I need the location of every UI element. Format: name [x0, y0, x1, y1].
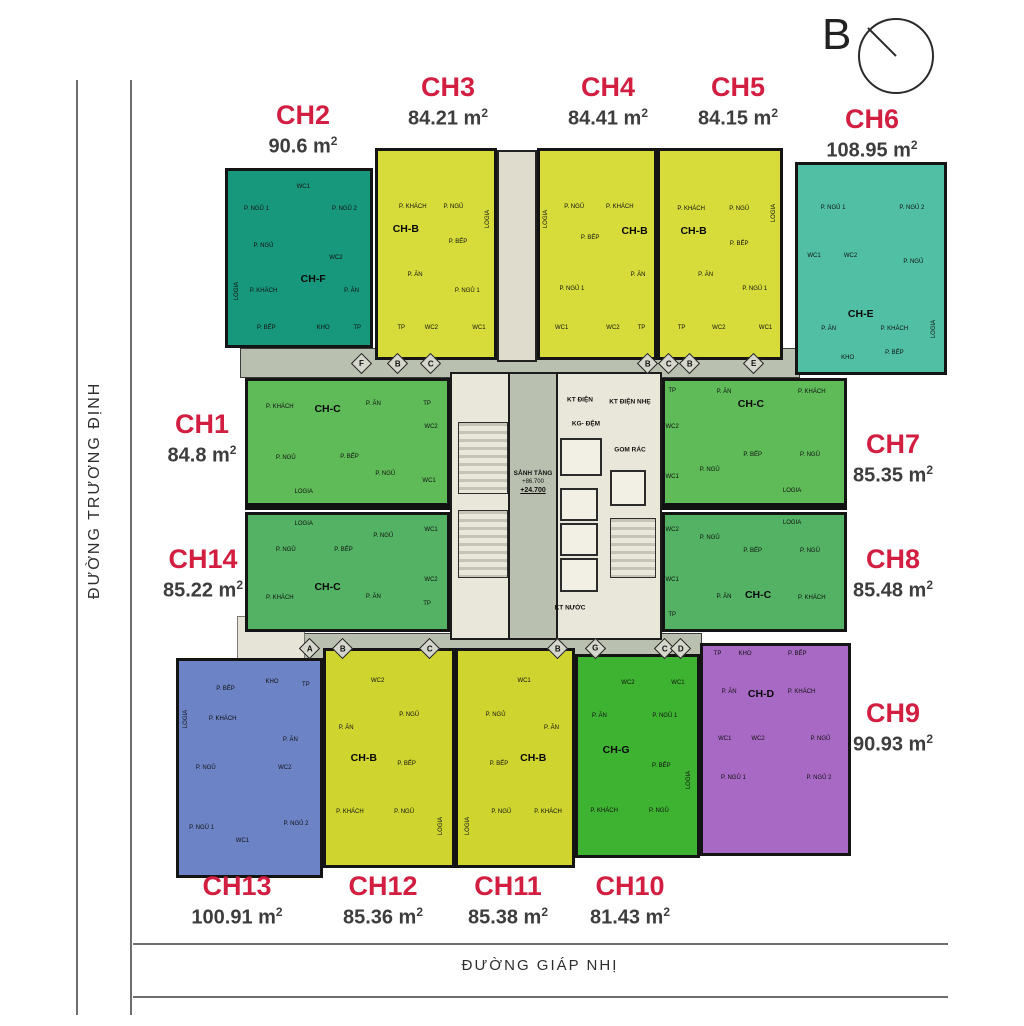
room-label: WC2 — [751, 736, 764, 742]
unit-area: 84.15 m2 — [663, 101, 813, 131]
room-label: P. NGỦ — [486, 712, 506, 718]
room-label: P. NGỦ 2 — [807, 775, 832, 781]
unit-callout-ch12: CH1285.36 m2 — [308, 873, 458, 930]
unit-id: CH1 — [127, 411, 277, 438]
unit-ch2[interactable]: CH-FP. NGỦ 1WC1P. NGỦ 2P. NGỦWC2LOGIAP. … — [225, 168, 373, 348]
room-label: WC2 — [371, 678, 384, 684]
room-label: WC2 — [425, 325, 438, 331]
room-label: P. ĂN — [544, 725, 559, 731]
room-label: P. NGỦ — [491, 809, 511, 815]
room-label: P. ĂN — [344, 288, 359, 294]
unit-callout-ch4: CH484.41 m2 — [533, 74, 683, 131]
room-label: P. ĂN — [339, 725, 354, 731]
room-label: WC2 — [329, 255, 342, 261]
room-label: WC1 — [422, 478, 435, 484]
unit-id: CH5 — [663, 74, 813, 101]
room-label: LOGIA — [783, 520, 801, 526]
room-label: TP — [714, 651, 722, 657]
unit-id: CH2 — [228, 102, 378, 129]
unit-type-label: CH-E — [848, 308, 874, 320]
room-label: P. NGỦ — [254, 243, 274, 249]
room-label: P. BẾP — [730, 241, 749, 247]
unit-type-label: CH-D — [748, 688, 774, 700]
room-label: P. NGỦ — [443, 204, 463, 210]
room-label: WC2 — [424, 424, 437, 430]
room-label: P. ĂN — [366, 594, 381, 600]
room-label: WC1 — [718, 736, 731, 742]
unit-id: CH12 — [308, 873, 458, 900]
room-label: P. ĂN — [283, 737, 298, 743]
room-label: P. NGỦ — [800, 452, 820, 458]
room-label: P. NGỦ 1 — [652, 713, 677, 719]
room-label: P. ĂN — [722, 689, 737, 695]
room-label: P. KHÁCH — [788, 689, 816, 695]
unit-ch5[interactable]: CH-BP. KHÁCHP. NGỦLOGIAP. BẾPP. ĂNP. NGỦ… — [657, 148, 783, 360]
unit-type-label: CH-C — [314, 403, 340, 415]
room-label: P. NGỦ 1 — [189, 825, 214, 831]
room-label: TP — [668, 388, 676, 394]
room-label: P. BẾP — [334, 547, 353, 553]
unit-area: 90.93 m2 — [818, 727, 968, 757]
unit-type-label: CH-B — [520, 752, 546, 764]
room-label: LOGIA — [295, 521, 313, 527]
room-label: P. NGỦ 1 — [821, 205, 846, 211]
room-label: P. BẾP — [743, 452, 762, 458]
room-label: P. KHÁCH — [606, 204, 634, 210]
unit-ch11[interactable]: CH-BWC1P. NGỦP. ĂNP. BẾPP. NGỦP. KHÁCHLO… — [455, 648, 575, 868]
unit-area: 90.6 m2 — [228, 129, 378, 159]
unit-area: 84.8 m2 — [127, 438, 277, 468]
unit-type-label: CH-B — [393, 223, 419, 235]
unit-ch12[interactable]: CH-BWC2P. NGỦP. ĂNP. BẾPP. KHÁCHP. NGỦLO… — [323, 648, 455, 868]
unit-id: CH14 — [128, 546, 278, 573]
room-label: LOGIA — [183, 710, 189, 728]
room-label: WC1 — [424, 527, 437, 533]
unit-callout-ch14: CH1485.22 m2 — [128, 546, 278, 603]
room-label: P. KHÁCH — [881, 326, 909, 332]
room-label: TP — [638, 325, 646, 331]
room-label: P. BẾP — [340, 454, 359, 460]
unit-id: CH3 — [373, 74, 523, 101]
room-label: P. BẾP — [652, 763, 671, 769]
unit-callout-ch1: CH184.8 m2 — [127, 411, 277, 468]
unit-type-label: CH-G — [603, 744, 630, 756]
room-label: P. NGỦ 2 — [332, 206, 357, 212]
room-label: P. ĂN — [717, 389, 732, 395]
wall-separator — [662, 503, 847, 510]
unit-type-label: CH-C — [745, 589, 771, 601]
unit-callout-ch13: CH13100.91 m2 — [162, 873, 312, 930]
room-label: LOGIA — [234, 282, 240, 300]
unit-id: CH8 — [818, 546, 968, 573]
room-label: P. NGỦ 1 — [721, 775, 746, 781]
room-label: P. BẾP — [743, 548, 762, 554]
room-label: KHO — [841, 355, 854, 361]
room-label: P. NGỦ — [649, 808, 669, 814]
room-label: P. NGỦ — [800, 548, 820, 554]
unit-area: 100.91 m2 — [162, 900, 312, 930]
room-label: P. NGỦ — [700, 467, 720, 473]
corridor-marker-a: A — [299, 638, 320, 659]
room-label: P. KHÁCH — [534, 809, 562, 815]
unit-type-label: CH-B — [351, 752, 377, 764]
room-label: P. NGỦ — [394, 809, 414, 815]
room-label: WC2 — [665, 527, 678, 533]
unit-ch3[interactable]: CH-BP. KHÁCHP. NGỦLOGIAP. BẾPP. ĂNP. NGỦ… — [375, 148, 497, 360]
room-label: P. ĂN — [592, 713, 607, 719]
room-label: WC1 — [297, 184, 310, 190]
room-label: WC1 — [759, 325, 772, 331]
room-label: TP — [423, 601, 431, 607]
room-label: KHO — [739, 651, 752, 657]
unit-callout-ch9: CH990.93 m2 — [818, 700, 968, 757]
room-label: P. ĂN — [821, 326, 836, 332]
room-label: P. NGỦ — [373, 533, 393, 539]
room-label: LOGIA — [543, 210, 549, 228]
room-label: P. ĂN — [366, 401, 381, 407]
unit-area: 85.35 m2 — [818, 458, 968, 488]
room-label: P. BẾP — [885, 350, 904, 356]
room-label: KHO — [266, 679, 279, 685]
unit-area: 108.95 m2 — [797, 133, 947, 163]
room-label: WC1 — [665, 577, 678, 583]
room-label: KHO — [317, 325, 330, 331]
room-label: P. NGỦ — [700, 535, 720, 541]
floorplan-canvas: ĐƯỜNG TRƯƠNG ĐỊNH ĐƯỜNG GIÁP NHỊ B SẢNH … — [0, 0, 1024, 1026]
unit-ch13[interactable]: P. BẾPKHOTPLOGIAP. KHÁCHP. ĂNP. NGỦWC2P.… — [176, 658, 323, 878]
room-label: TP — [423, 401, 431, 407]
room-label: LOGIA — [686, 771, 692, 789]
room-label: P. KHÁCH — [266, 404, 294, 410]
room-label: P. BẾP — [216, 686, 235, 692]
room-label: WC2 — [665, 424, 678, 430]
room-label: P. KHÁCH — [798, 389, 826, 395]
room-label: P. NGỦ 2 — [284, 821, 309, 827]
room-label: P. NGỦ 2 — [899, 205, 924, 211]
room-label: LOGIA — [783, 488, 801, 494]
room-label: P. NGỦ — [564, 204, 584, 210]
room-label: P. BẾP — [788, 651, 807, 657]
room-label: P. NGỦ — [903, 259, 923, 265]
room-label: P. NGỦ 1 — [742, 286, 767, 292]
room-label: P. ĂN — [631, 272, 646, 278]
room-label: LOGIA — [485, 210, 491, 228]
room-label: TP — [668, 612, 676, 618]
unit-id: CH7 — [818, 431, 968, 458]
room-label: P. NGỦ 1 — [455, 288, 480, 294]
room-label: P. NGỦ 1 — [559, 286, 584, 292]
room-label: P. BẾP — [257, 325, 276, 331]
room-label: P. KHÁCH — [399, 204, 427, 210]
unit-ch6[interactable]: CH-EP. NGỦ 1P. NGỦ 2WC1WC2P. NGỦP. ĂNP. … — [795, 162, 947, 375]
room-label: LOGIA — [931, 319, 937, 337]
unit-ch4[interactable]: CH-BLOGIAP. NGỦP. KHÁCHP. BẾPP. ĂNP. NGỦ… — [537, 148, 657, 360]
room-label: P. KHÁCH — [250, 288, 278, 294]
room-label: WC2 — [606, 325, 619, 331]
unit-id: CH13 — [162, 873, 312, 900]
room-label: P. KHÁCH — [677, 206, 705, 212]
room-label: P. ĂN — [717, 594, 732, 600]
room-label: WC1 — [555, 325, 568, 331]
room-label: P. NGỦ — [375, 471, 395, 477]
unit-type-label: CH-C — [738, 398, 764, 410]
room-label: P. BẾP — [490, 761, 509, 767]
room-label: WC1 — [665, 474, 678, 480]
room-label: P. BẾP — [581, 235, 600, 241]
unit-callout-ch2: CH290.6 m2 — [228, 102, 378, 159]
corridor-marker-f: F — [351, 353, 372, 374]
unit-callout-ch5: CH584.15 m2 — [663, 74, 813, 131]
room-label: P. NGỦ — [276, 547, 296, 553]
room-label: LOGIA — [438, 817, 444, 835]
room-label: WC1 — [807, 253, 820, 259]
room-label: TP — [353, 325, 361, 331]
wall-separator — [245, 503, 450, 510]
unit-callout-ch8: CH885.48 m2 — [818, 546, 968, 603]
room-label: P. NGỦ — [399, 712, 419, 718]
room-label: WC2 — [712, 325, 725, 331]
unit-area: 84.41 m2 — [533, 101, 683, 131]
room-label: P. BẾP — [449, 239, 468, 245]
unit-id: CH4 — [533, 74, 683, 101]
room-label: TP — [302, 682, 310, 688]
unit-callout-ch7: CH785.35 m2 — [818, 431, 968, 488]
unit-type-label: CH-F — [301, 273, 326, 285]
room-label: TP — [678, 325, 686, 331]
room-label: P. NGỦ — [276, 455, 296, 461]
room-label: WC2 — [844, 253, 857, 259]
room-label: TP — [397, 325, 405, 331]
unit-id: CH6 — [797, 106, 947, 133]
room-label: WC1 — [517, 678, 530, 684]
unit-area: 85.48 m2 — [818, 573, 968, 603]
unit-area: 85.36 m2 — [308, 900, 458, 930]
unit-area: 85.22 m2 — [128, 573, 278, 603]
room-label: P. NGỦ — [729, 206, 749, 212]
room-label: P. NGỦ — [196, 765, 216, 771]
room-label: P. KHÁCH — [336, 809, 364, 815]
room-label: P. KHÁCH — [590, 808, 618, 814]
room-label: LOGIA — [465, 817, 471, 835]
unit-area: 84.21 m2 — [373, 101, 523, 131]
room-label: P. ĂN — [408, 272, 423, 278]
unit-type-label: CH-B — [621, 225, 647, 237]
room-label: WC1 — [671, 680, 684, 686]
unit-callout-ch3: CH384.21 m2 — [373, 74, 523, 131]
room-label: P. ĂN — [698, 272, 713, 278]
room-label: P. BẾP — [397, 761, 416, 767]
unit-type-label: CH-C — [314, 581, 340, 593]
room-label: WC1 — [472, 325, 485, 331]
room-label: WC2 — [621, 680, 634, 686]
room-label: LOGIA — [771, 204, 777, 222]
units-layer: CH-CP. KHÁCHP. ĂNTPWC2P. NGỦP. BẾPP. NGỦ… — [0, 0, 1024, 1026]
room-label: P. KHÁCH — [209, 716, 237, 722]
unit-callout-ch6: CH6108.95 m2 — [797, 106, 947, 163]
room-label: P. NGỦ 1 — [244, 206, 269, 212]
room-label: LOGIA — [295, 489, 313, 495]
room-label: WC2 — [278, 765, 291, 771]
room-label: WC1 — [236, 838, 249, 844]
room-label: WC2 — [424, 577, 437, 583]
unit-type-label: CH-B — [680, 225, 706, 237]
unit-ch10[interactable]: CH-GWC2WC1P. ĂNP. NGỦ 1P. BẾPLOGIAP. KHÁ… — [575, 654, 700, 858]
unit-id: CH9 — [818, 700, 968, 727]
